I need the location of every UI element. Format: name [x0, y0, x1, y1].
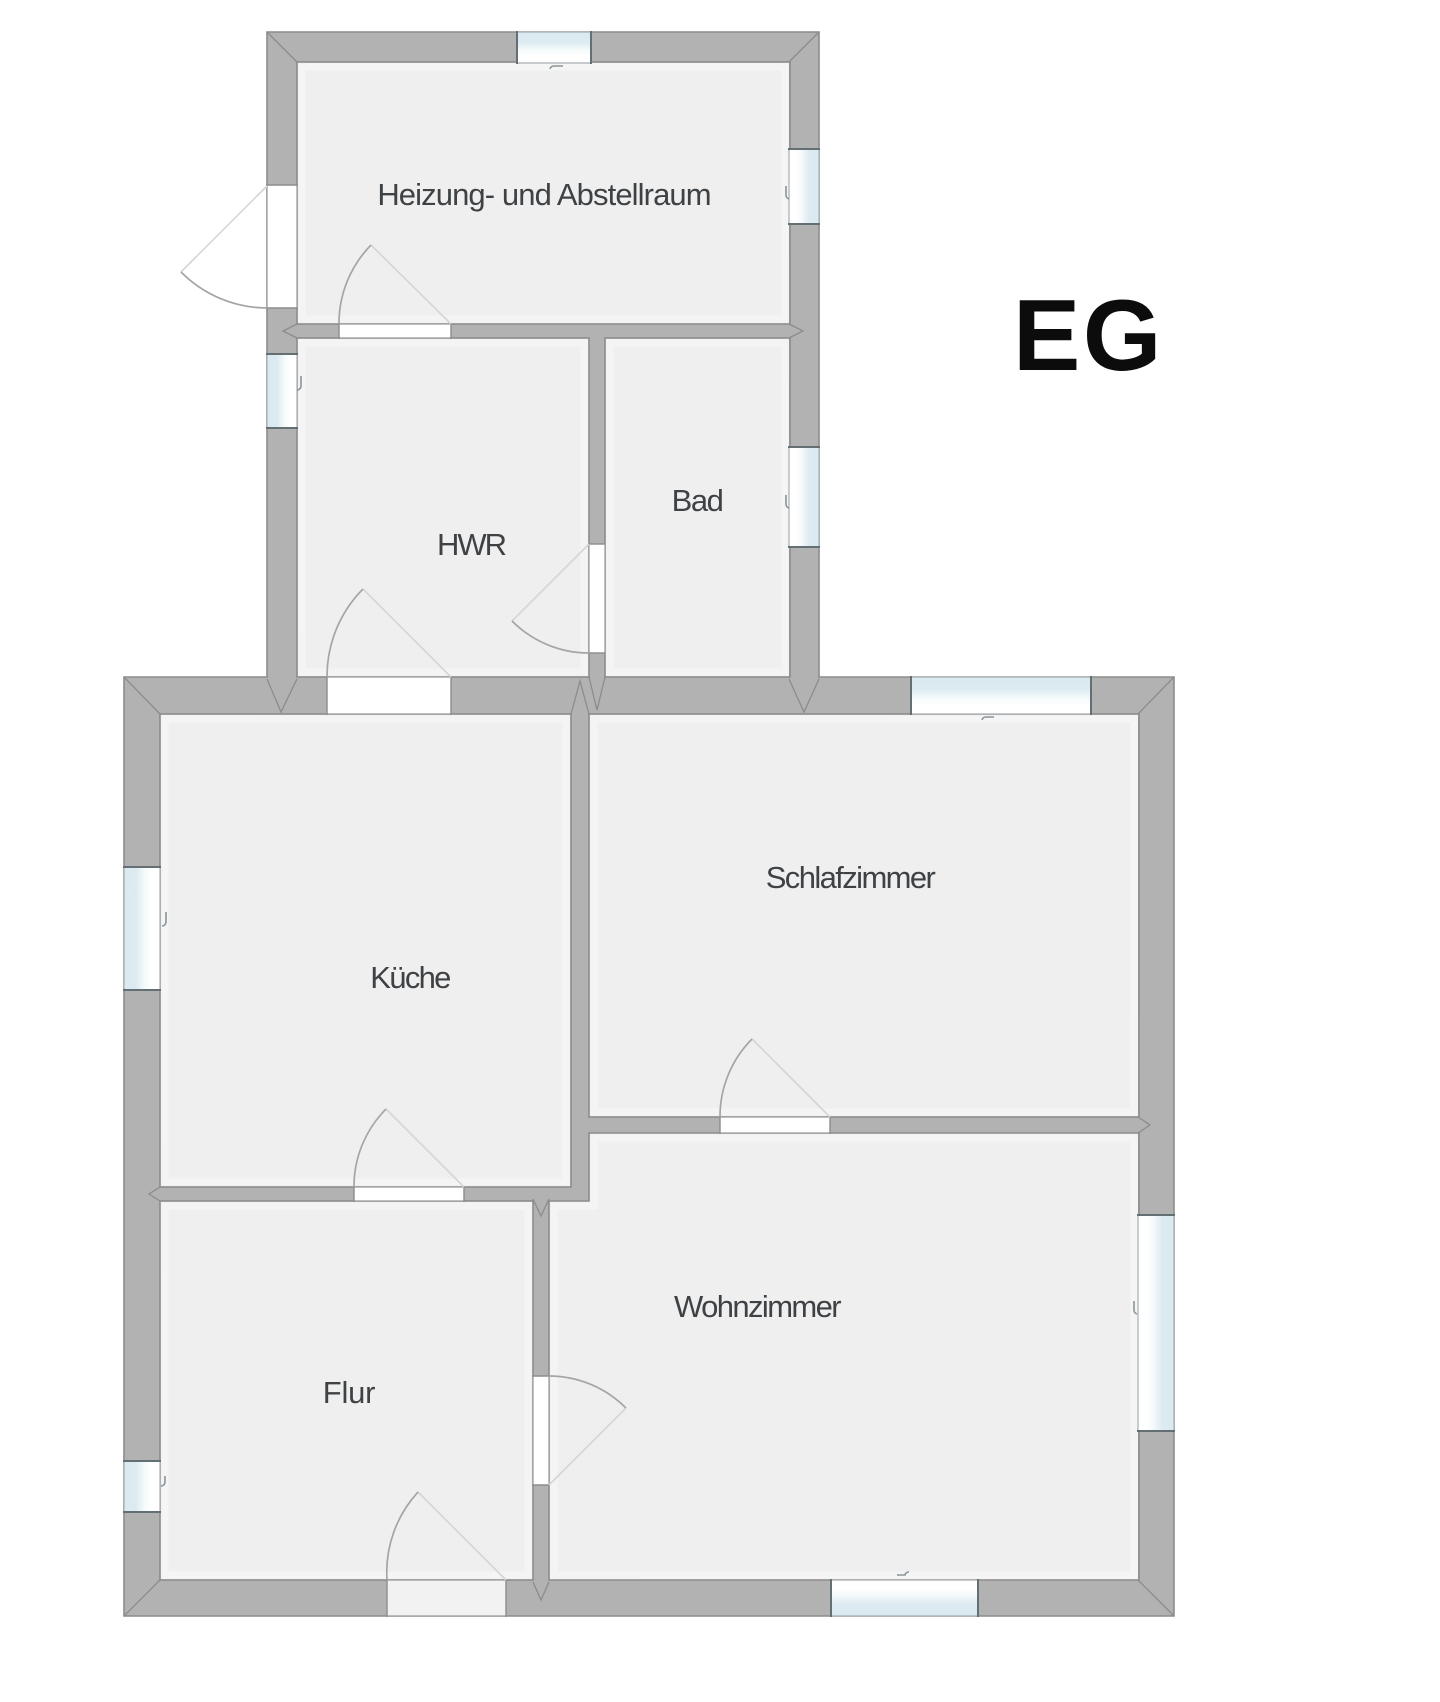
- svg-text:HWR: HWR: [437, 527, 506, 562]
- svg-text:Schlafzimmer: Schlafzimmer: [766, 860, 936, 895]
- svg-text:Flur: Flur: [323, 1375, 376, 1410]
- svg-text:Bad: Bad: [672, 483, 723, 518]
- svg-text:Heizung- und Abstellraum: Heizung- und Abstellraum: [377, 177, 710, 212]
- svg-text:Küche: Küche: [370, 960, 450, 995]
- svg-text:EG: EG: [1013, 280, 1164, 392]
- svg-text:Wohnzimmer: Wohnzimmer: [674, 1289, 841, 1324]
